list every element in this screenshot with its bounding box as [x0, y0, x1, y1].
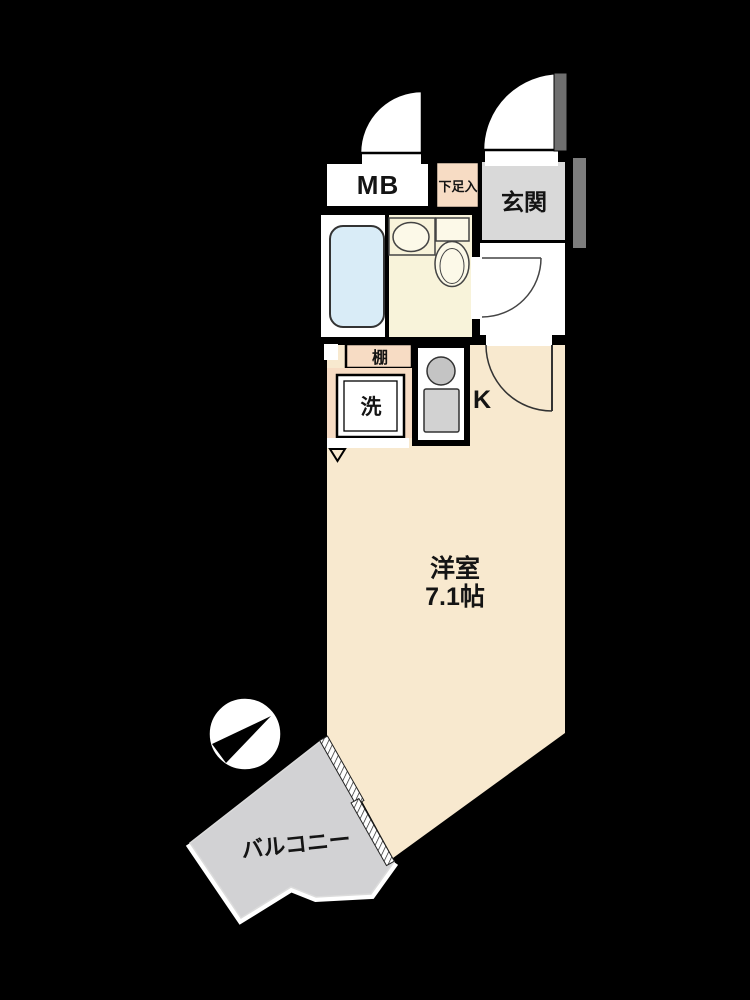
sink-icon [393, 223, 429, 252]
label-meter-box: MB [357, 170, 399, 200]
floorplan-drawing: MB 下足入 玄関 棚 洗 K 洋室 7.1帖 バルコニー [0, 0, 750, 1000]
bath-door-opening [471, 257, 483, 319]
entrance-door-panel [554, 73, 567, 151]
label-room-size: 7.1帖 [425, 583, 485, 611]
label-room-name: 洋室 [430, 554, 480, 583]
burner-icon [427, 357, 455, 385]
hallway [480, 243, 565, 335]
label-washer: 洗 [361, 396, 382, 419]
room-door-threshold [486, 333, 552, 346]
pipe-space-box [324, 344, 338, 360]
label-shoe-cabinet: 下足入 [438, 179, 477, 194]
washer-area-edge [327, 438, 409, 448]
kitchen-sink-icon [424, 389, 459, 432]
bathtub-icon [330, 226, 384, 327]
floorplan-canvas: MB 下足入 玄関 棚 洗 K 洋室 7.1帖 バルコニー [0, 0, 750, 1000]
label-entrance: 玄関 [501, 189, 547, 215]
toilet-tank-icon [436, 218, 469, 241]
label-shelf: 棚 [372, 348, 388, 367]
exterior-wall-bar [573, 158, 586, 248]
label-kitchen: K [473, 386, 491, 414]
